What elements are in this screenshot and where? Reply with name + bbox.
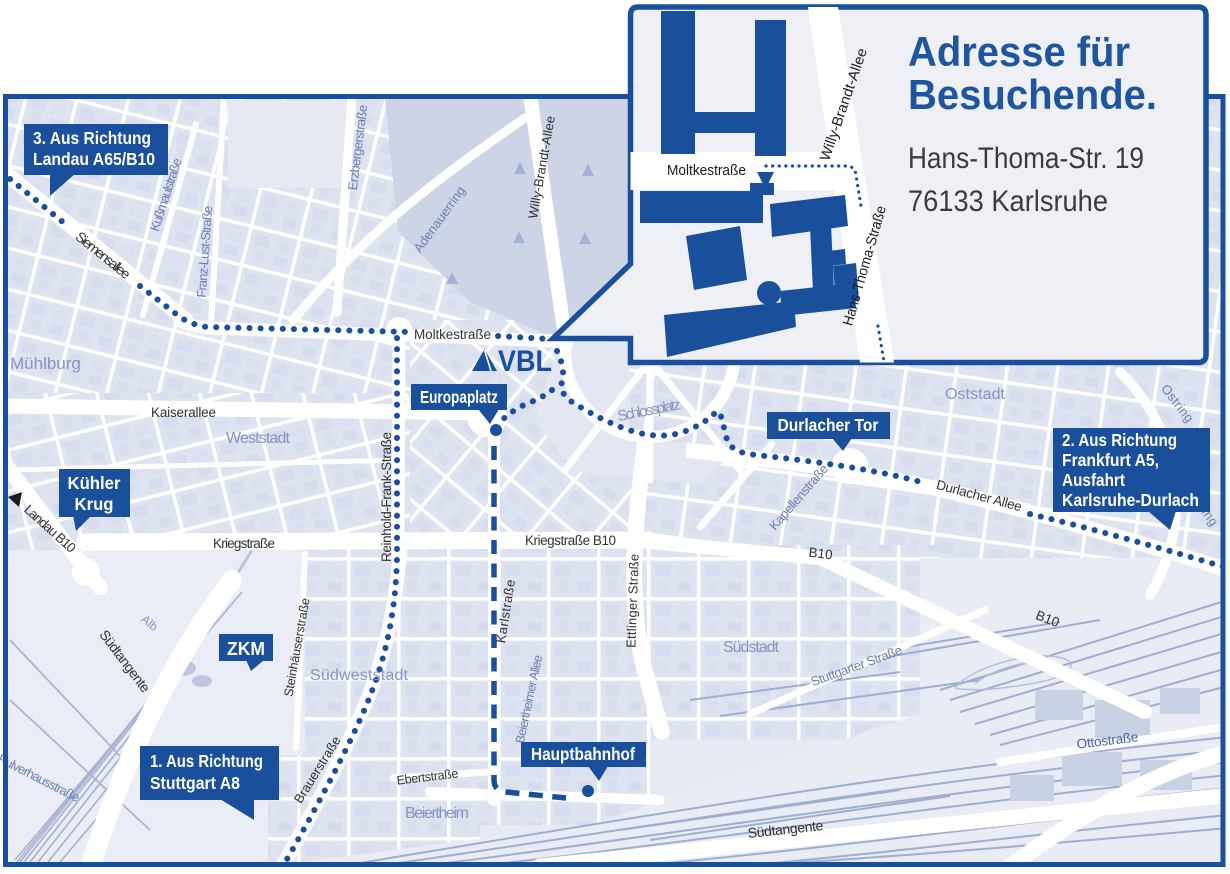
svg-text:Europaplatz: Europaplatz [420, 387, 498, 407]
svg-text:Karlsruhe-Durlach: Karlsruhe-Durlach [1062, 490, 1199, 510]
svg-text:Moltkestraße: Moltkestraße [414, 327, 491, 342]
svg-text:Mühlburg: Mühlburg [10, 354, 81, 373]
svg-text:Kaiserallee: Kaiserallee [151, 405, 216, 420]
svg-text:Reinhold-Frank-Straße: Reinhold-Frank-Straße [379, 432, 394, 562]
svg-text:Besuchende.: Besuchende. [908, 71, 1157, 118]
svg-text:Landau A65/B10: Landau A65/B10 [33, 149, 155, 169]
svg-text:ZKM: ZKM [227, 639, 265, 659]
svg-text:3. Aus Richtung: 3. Aus Richtung [33, 128, 151, 148]
svg-text:Kriegstraße: Kriegstraße [213, 536, 275, 551]
svg-text:Stuttgart A8: Stuttgart A8 [150, 773, 240, 793]
svg-text:Südstadt: Südstadt [723, 639, 780, 656]
svg-text:Moltkestraße: Moltkestraße [667, 162, 746, 179]
svg-text:2. Aus Richtung: 2. Aus Richtung [1062, 430, 1177, 450]
svg-text:Durlacher Tor: Durlacher Tor [778, 415, 879, 435]
svg-text:B10: B10 [808, 545, 834, 563]
svg-text:Ausfahrt: Ausfahrt [1062, 470, 1125, 490]
svg-text:Krug: Krug [75, 494, 114, 514]
svg-text:Weststadt: Weststadt [226, 430, 291, 447]
svg-text:VBL: VBL [498, 345, 552, 378]
svg-text:Kriegstraße B10: Kriegstraße B10 [525, 533, 616, 548]
svg-text:1. Aus Richtung: 1. Aus Richtung [150, 751, 263, 771]
svg-text:Beiertheim: Beiertheim [405, 805, 469, 822]
svg-text:Südweststadt: Südweststadt [310, 667, 409, 684]
svg-text:Adresse für: Adresse für [908, 28, 1130, 75]
svg-text:Kühler: Kühler [68, 473, 121, 493]
svg-text:Oststadt: Oststadt [945, 386, 1006, 403]
svg-text:76133 Karlsruhe: 76133 Karlsruhe [908, 185, 1108, 218]
svg-text:Frankfurt A5,: Frankfurt A5, [1062, 450, 1159, 470]
svg-text:Hans-Thoma-Str. 19: Hans-Thoma-Str. 19 [908, 142, 1144, 175]
svg-text:Hauptbahnhof: Hauptbahnhof [531, 744, 635, 764]
